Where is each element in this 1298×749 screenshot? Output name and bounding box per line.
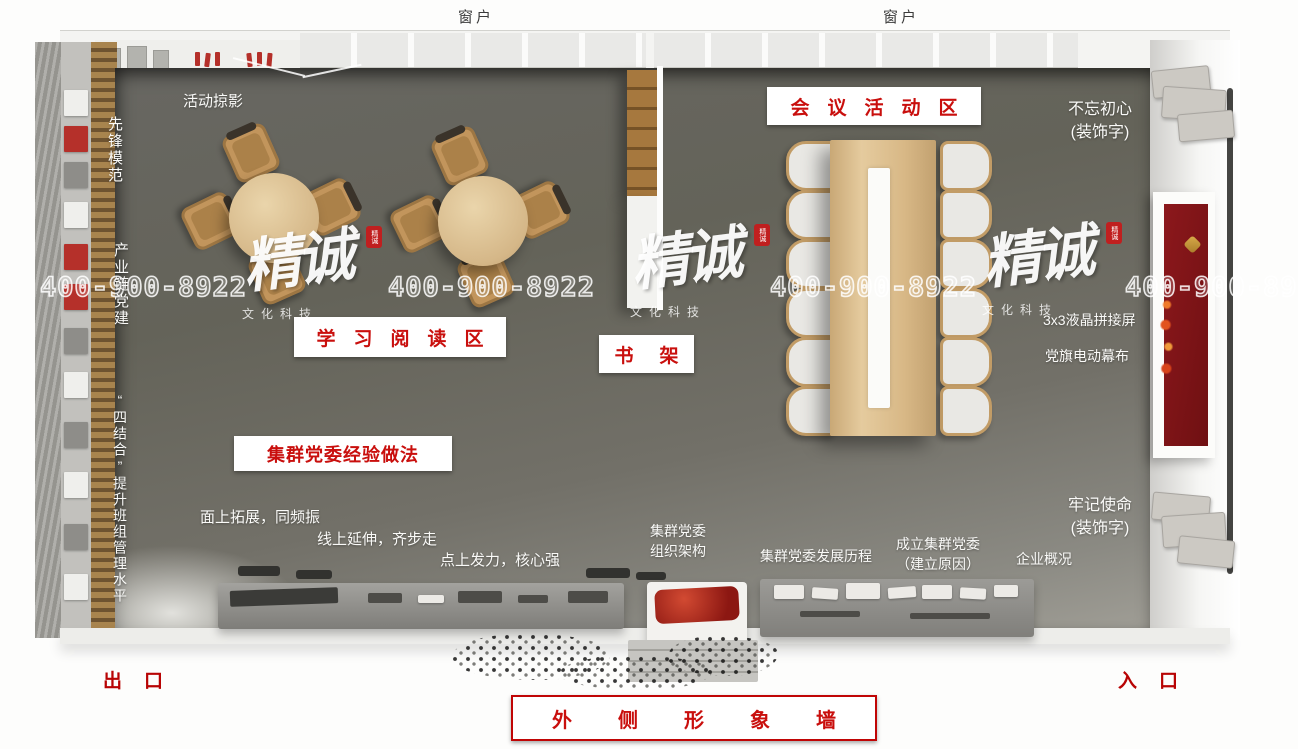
model-block bbox=[994, 585, 1018, 597]
watermark-logo: 精诚 精诚 文化科技 bbox=[980, 218, 1128, 318]
exhibit-counter-left bbox=[218, 583, 624, 629]
four-combine-label: “四结合”提升班组管理水平 bbox=[110, 392, 130, 604]
conference-chair bbox=[940, 386, 992, 436]
model-block bbox=[846, 583, 880, 599]
red-display-top bbox=[654, 586, 740, 624]
poster-thumbnail bbox=[64, 524, 88, 550]
exhibit-item bbox=[368, 593, 402, 603]
floor-bench bbox=[586, 568, 630, 578]
decor-stone bbox=[1177, 110, 1235, 143]
poster-thumbnail bbox=[64, 472, 88, 498]
red-book bbox=[215, 52, 220, 66]
founding-line2: （建立原因） bbox=[896, 554, 980, 574]
motto-bottom-label: 牢记使命 (装饰字) bbox=[1068, 494, 1132, 540]
exit-label: 出口 bbox=[103, 666, 185, 693]
bookshelf-zone-label: 书架 bbox=[614, 341, 704, 368]
right-wall-rail bbox=[1227, 88, 1233, 574]
watermark-phone: 400-900-8922 bbox=[770, 272, 977, 303]
entrance-label: 入口 bbox=[1118, 666, 1200, 693]
model-block bbox=[960, 587, 987, 599]
flag-curtain-label: 党旗电动幕布 bbox=[1045, 346, 1129, 366]
watermark-phone: 400-900-8922 bbox=[1125, 272, 1298, 303]
reading-zone-label: 学习阅读区 bbox=[316, 324, 501, 351]
company-overview-label: 企业概况 bbox=[1016, 549, 1072, 569]
org-structure-line1: 集群党委 bbox=[650, 521, 706, 541]
development-history-label: 集群党委发展历程 bbox=[760, 546, 872, 566]
meeting-zone-label: 会议活动区 bbox=[790, 93, 975, 120]
decor-stone bbox=[1177, 535, 1236, 569]
meeting-zone-box: 会议活动区 bbox=[767, 87, 981, 125]
window-right bbox=[654, 33, 1078, 69]
exhibit-counter-right bbox=[760, 579, 1034, 637]
red-book bbox=[195, 52, 200, 66]
poster-thumbnail bbox=[64, 244, 88, 270]
motto-top-line1: 不忘初心 bbox=[1068, 98, 1132, 121]
founding-label: 成立集群党委 （建立原因） bbox=[896, 534, 980, 575]
watermark-logo: 精诚 精诚 文化科技 bbox=[240, 222, 388, 322]
model-block bbox=[812, 587, 839, 600]
conference-chair bbox=[940, 141, 992, 191]
experience-zone-label: 集群党委经验做法 bbox=[267, 441, 419, 467]
org-structure-line2: 组织架构 bbox=[650, 541, 706, 561]
poster-thumbnail bbox=[64, 90, 88, 116]
model-block bbox=[888, 586, 917, 599]
lcd-screen-label: 3x3液晶拼接屏 bbox=[1043, 310, 1136, 330]
outer-image-wall-box: 外侧形象墙 bbox=[511, 695, 877, 741]
reading-zone-box: 学习阅读区 bbox=[294, 317, 506, 357]
window-left bbox=[300, 33, 646, 69]
exhibit-item bbox=[568, 591, 608, 603]
exhibition-floor-plan: 400-900-8922 400-900-8922 400-900-8922 4… bbox=[0, 0, 1298, 749]
watermark-brand: 精诚 bbox=[977, 204, 1094, 301]
industry-chain-label: 产业链党建 bbox=[110, 242, 131, 327]
left-wall-poster-strip bbox=[61, 42, 91, 638]
watermark-seal: 精诚 bbox=[1106, 222, 1122, 244]
org-structure-label: 集群党委 组织架构 bbox=[650, 521, 706, 562]
model-block bbox=[774, 585, 804, 599]
motto-bottom-line2: (装饰字) bbox=[1068, 517, 1132, 540]
poster-thumbnail bbox=[64, 422, 88, 448]
reading-table bbox=[438, 176, 528, 266]
bookshelf-zone-box: 书架 bbox=[599, 335, 694, 373]
poster-thumbnail bbox=[64, 372, 88, 398]
floor-bench bbox=[296, 570, 332, 579]
watermark-brand: 精诚 bbox=[237, 208, 354, 305]
exhibit-item bbox=[230, 587, 338, 607]
floor-bench bbox=[238, 566, 280, 576]
watermark-seal: 精诚 bbox=[754, 224, 770, 246]
exhibit-item bbox=[518, 595, 548, 603]
experience-zone-box: 集群党委经验做法 bbox=[234, 436, 452, 471]
bookshelf-divider-wood bbox=[627, 70, 657, 196]
founding-line1: 成立集群党委 bbox=[896, 534, 980, 554]
exhibit-item bbox=[418, 595, 444, 603]
poster-thumbnail bbox=[64, 126, 88, 152]
slogan-1: 面上拓展，同频振 bbox=[200, 506, 320, 527]
activity-snapshots-label: 活动掠影 bbox=[183, 90, 243, 111]
slogan-2: 线上延伸，齐步走 bbox=[317, 528, 437, 549]
watermark-brand: 精诚 bbox=[625, 206, 742, 303]
conference-chair bbox=[940, 337, 992, 387]
pioneer-model-label: 先锋模范 bbox=[104, 116, 125, 184]
window-label-right: 窗户 bbox=[883, 6, 919, 27]
flame-decor bbox=[1160, 298, 1174, 382]
watermark-logo: 精诚 精诚 文化科技 bbox=[628, 220, 776, 320]
model-block bbox=[922, 585, 952, 599]
left-wall-stone bbox=[35, 42, 61, 638]
motto-bottom-line1: 牢记使命 bbox=[1068, 494, 1132, 517]
gravel-decor bbox=[668, 636, 778, 676]
watermark-phone: 400-900-8922 bbox=[388, 272, 595, 303]
exhibit-item bbox=[800, 611, 860, 617]
exhibit-item bbox=[910, 613, 990, 619]
motto-top-label: 不忘初心 (装饰字) bbox=[1068, 98, 1132, 144]
window-label-left: 窗户 bbox=[458, 6, 494, 27]
poster-thumbnail bbox=[64, 328, 88, 354]
exhibit-item bbox=[458, 591, 502, 603]
watermark-phone: 400-900-8922 bbox=[40, 272, 247, 303]
watermark-seal: 精诚 bbox=[366, 226, 382, 248]
floor-bench bbox=[636, 572, 666, 580]
watermark-brand-sub: 文化科技 bbox=[630, 303, 706, 320]
poster-thumbnail bbox=[64, 202, 88, 228]
poster-thumbnail bbox=[64, 574, 88, 600]
red-book bbox=[204, 53, 211, 68]
slogan-3: 点上发力，核心强 bbox=[440, 549, 560, 570]
motto-top-line2: (装饰字) bbox=[1068, 121, 1132, 144]
poster-thumbnail bbox=[64, 162, 88, 188]
outer-image-wall-label: 外侧形象墙 bbox=[552, 704, 882, 733]
